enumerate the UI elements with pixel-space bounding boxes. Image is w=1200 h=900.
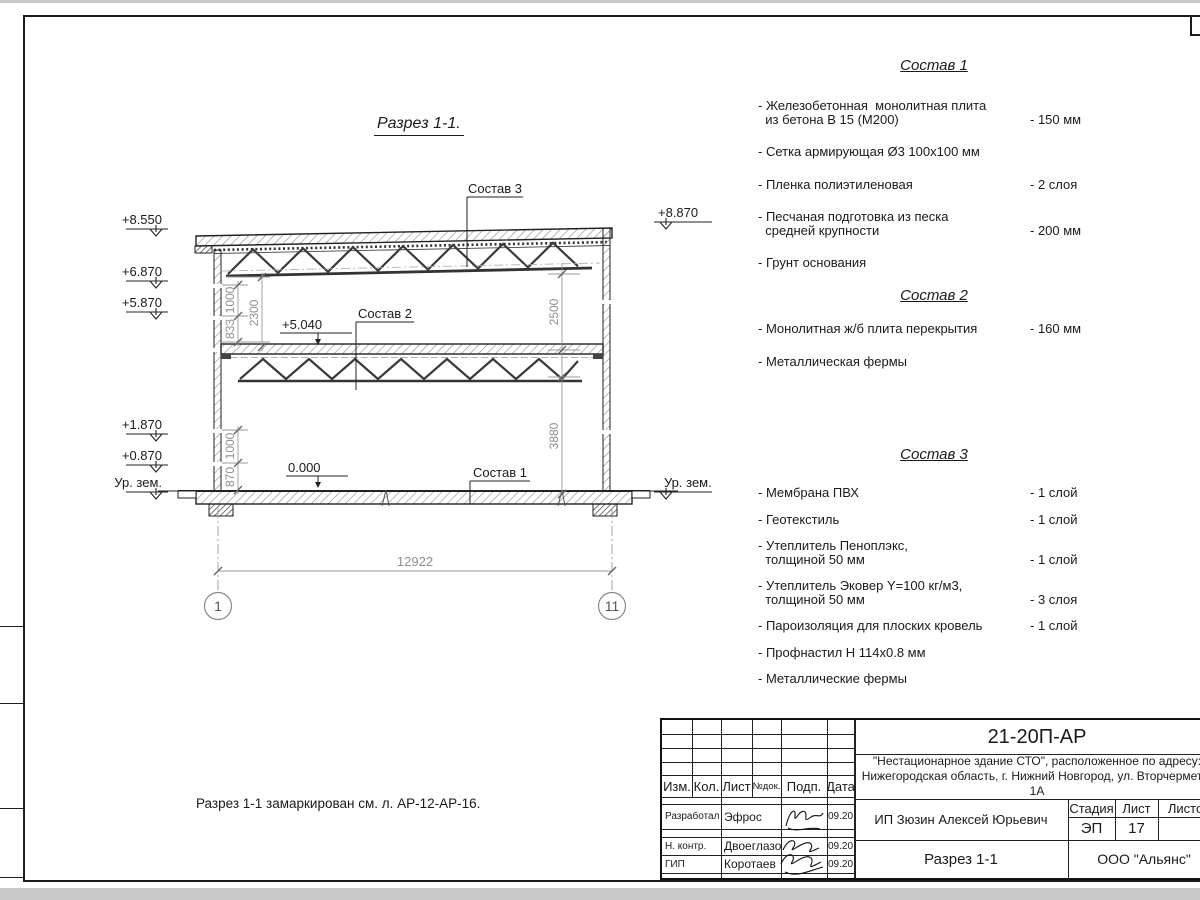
elevation-marks-left: +8.550 +6.870 +5.870 +1.870 +0.870 Ур. з… [114,212,168,499]
composition-item: - Профнастил Н 114х0.8 мм [758,646,1110,660]
company-name: ООО "Альянс" [1068,840,1200,878]
grid-axis-label: 11 [605,598,620,614]
bottom-gray-band [0,888,1200,900]
svg-text:Состав 2: Состав 2 [358,306,412,321]
section-drawing-svg: +8.550 +6.870 +5.870 +1.870 +0.870 Ур. з… [0,0,760,700]
sheet-label: Лист [1115,799,1158,817]
stamp-name: Коротаев [721,855,781,873]
elevation-label: +5.870 [122,295,162,310]
stage-label: Стадия [1068,799,1115,817]
col-header-kol: Кол. [692,775,721,797]
col-header-sign: Подп. [781,775,827,797]
signature-gip [775,834,829,876]
sheet-number: 17 [1115,817,1158,840]
col-header-doc: №док. [752,775,781,797]
ground-level-label: Ур. зем. [114,475,162,490]
elevation-label: +6.870 [122,264,162,279]
drawing-title: Разрез 1-1. [374,115,464,136]
sheets-label: Листов [1158,799,1200,817]
composition-title: Состав 1 [758,57,1110,75]
grid-axis-label: 1 [214,598,222,614]
dim-lower-870: 870 [223,467,237,487]
dim-lower-1000: 1000 [223,432,237,459]
marking-note: Разрез 1-1 замаркирован см. л. АР-12-АР-… [196,796,480,811]
dim-upper-1000: 1000 [223,286,237,313]
svg-text:Состав 1: Состав 1 [473,465,527,480]
stage-value: ЭП [1068,817,1115,840]
stamp-role: Разработал [662,804,721,829]
col-header-list: Лист [721,775,752,797]
mid-floor-slab [221,344,603,359]
composition-item: - Пленка полиэтиленовая- 2 слоя [758,178,1110,192]
dim-right-2500: 2500 [547,298,561,325]
right-wall [602,228,612,491]
ground-level-label: Ур. зем. [664,475,712,490]
dim-right-3880: 3880 [547,422,561,449]
composition-item: - Утеплитель Эковер Y=100 кг/м3, толщино… [758,579,1110,606]
left-margin-box-3 [0,808,24,878]
project-description: "Нестационарное здание СТО", расположенн… [854,754,1200,799]
format-stamp-box [1190,15,1200,36]
level-0000: 0.000 [286,460,348,488]
project-line-2: Нижегородская область, г. Нижний Новгоро… [854,769,1200,799]
composition-item: - Железобетонная монолитная плита из бет… [758,99,1110,126]
ground-floor-slab [158,490,678,516]
composition-title: Состав 2 [758,287,1110,305]
dim-upper-2300: 2300 [247,299,261,326]
elevation-label: +8.550 [122,212,162,227]
svg-text:+5.040: +5.040 [282,317,322,332]
left-wall [213,250,223,491]
svg-text:0.000: 0.000 [288,460,321,475]
stamp-name: Эфрос [721,804,781,829]
composition-title: Состав 3 [758,446,1110,464]
mid-floor-truss [238,359,582,381]
dim-total-12922: 12922 [397,554,433,569]
level-5040: +5.040 [280,317,352,345]
stamp-date: 09.20 [827,837,854,855]
roof-slab [195,228,612,254]
sheet-title: Разрез 1-1 [854,840,1068,878]
stamp-date: 09.20 [827,804,854,829]
composition-item: - Утеплитель Пеноплэкс, толщиной 50 мм- … [758,539,1110,566]
elevation-label: +8.870 [658,205,698,220]
stamp-date: 09.20 [827,855,854,873]
document-number: 21-20П-АР [854,720,1200,754]
composition-item: - Мембрана ПВХ- 1 слой [758,486,1110,500]
sheets-total [1158,817,1200,840]
elevation-marks-right: +8.870 Ур. зем. [654,205,712,499]
dim-upper-833: 833 [223,319,237,339]
signature-razrabotal [781,802,827,834]
composition-item: - Геотекстиль- 1 слой [758,513,1110,527]
title-block: Изм. Кол. Лист №док. Подп. Дата Разработ… [660,718,1200,880]
client-name: ИП Зюзин Алексей Юрьевич [854,799,1068,840]
composition-item: - Пароизоляция для плоских кровель- 1 сл… [758,619,1110,633]
dimension-chains: 1000 833 2300 1000 870 2500 3880 12922 [214,263,616,590]
elevation-label: +1.870 [122,417,162,432]
composition-item: - Песчаная подготовка из песка средней к… [758,210,1110,237]
svg-text:Состав 3: Состав 3 [468,181,522,196]
elevation-label: +0.870 [122,448,162,463]
composition-list-1: Состав 1 - Железобетонная монолитная пли… [758,57,1110,289]
composition-item: - Металлическая фермы [758,355,1110,369]
composition-list-3: Состав 3 - Мембрана ПВХ- 1 слой - Геотек… [758,446,1110,699]
composition-item: - Грунт основания [758,256,1110,270]
grid-axis-left: 1 [205,593,232,620]
stamp-name: Двоеглазов [721,837,781,855]
sheet: +8.550 +6.870 +5.870 +1.870 +0.870 Ур. з… [0,0,1200,900]
grid-axis-right: 11 [599,593,626,620]
col-header-date: Дата [827,775,854,797]
composition-item: - Монолитная ж/б плита перекрытия- 160 м… [758,322,1110,336]
project-line-1: "Нестационарное здание СТО", расположенн… [873,754,1200,769]
composition-item: - Сетка армирующая Ø3 100х100 мм [758,145,1110,159]
composition-item: - Металлические фермы [758,672,1110,686]
composition-list-2: Состав 2 - Монолитная ж/б плита перекрыт… [758,287,1110,387]
stamp-role: Н. контр. [662,837,721,855]
stamp-role: ГИП [662,855,721,873]
left-margin-box-2 [0,703,24,809]
col-header-izm: Изм. [662,775,692,797]
